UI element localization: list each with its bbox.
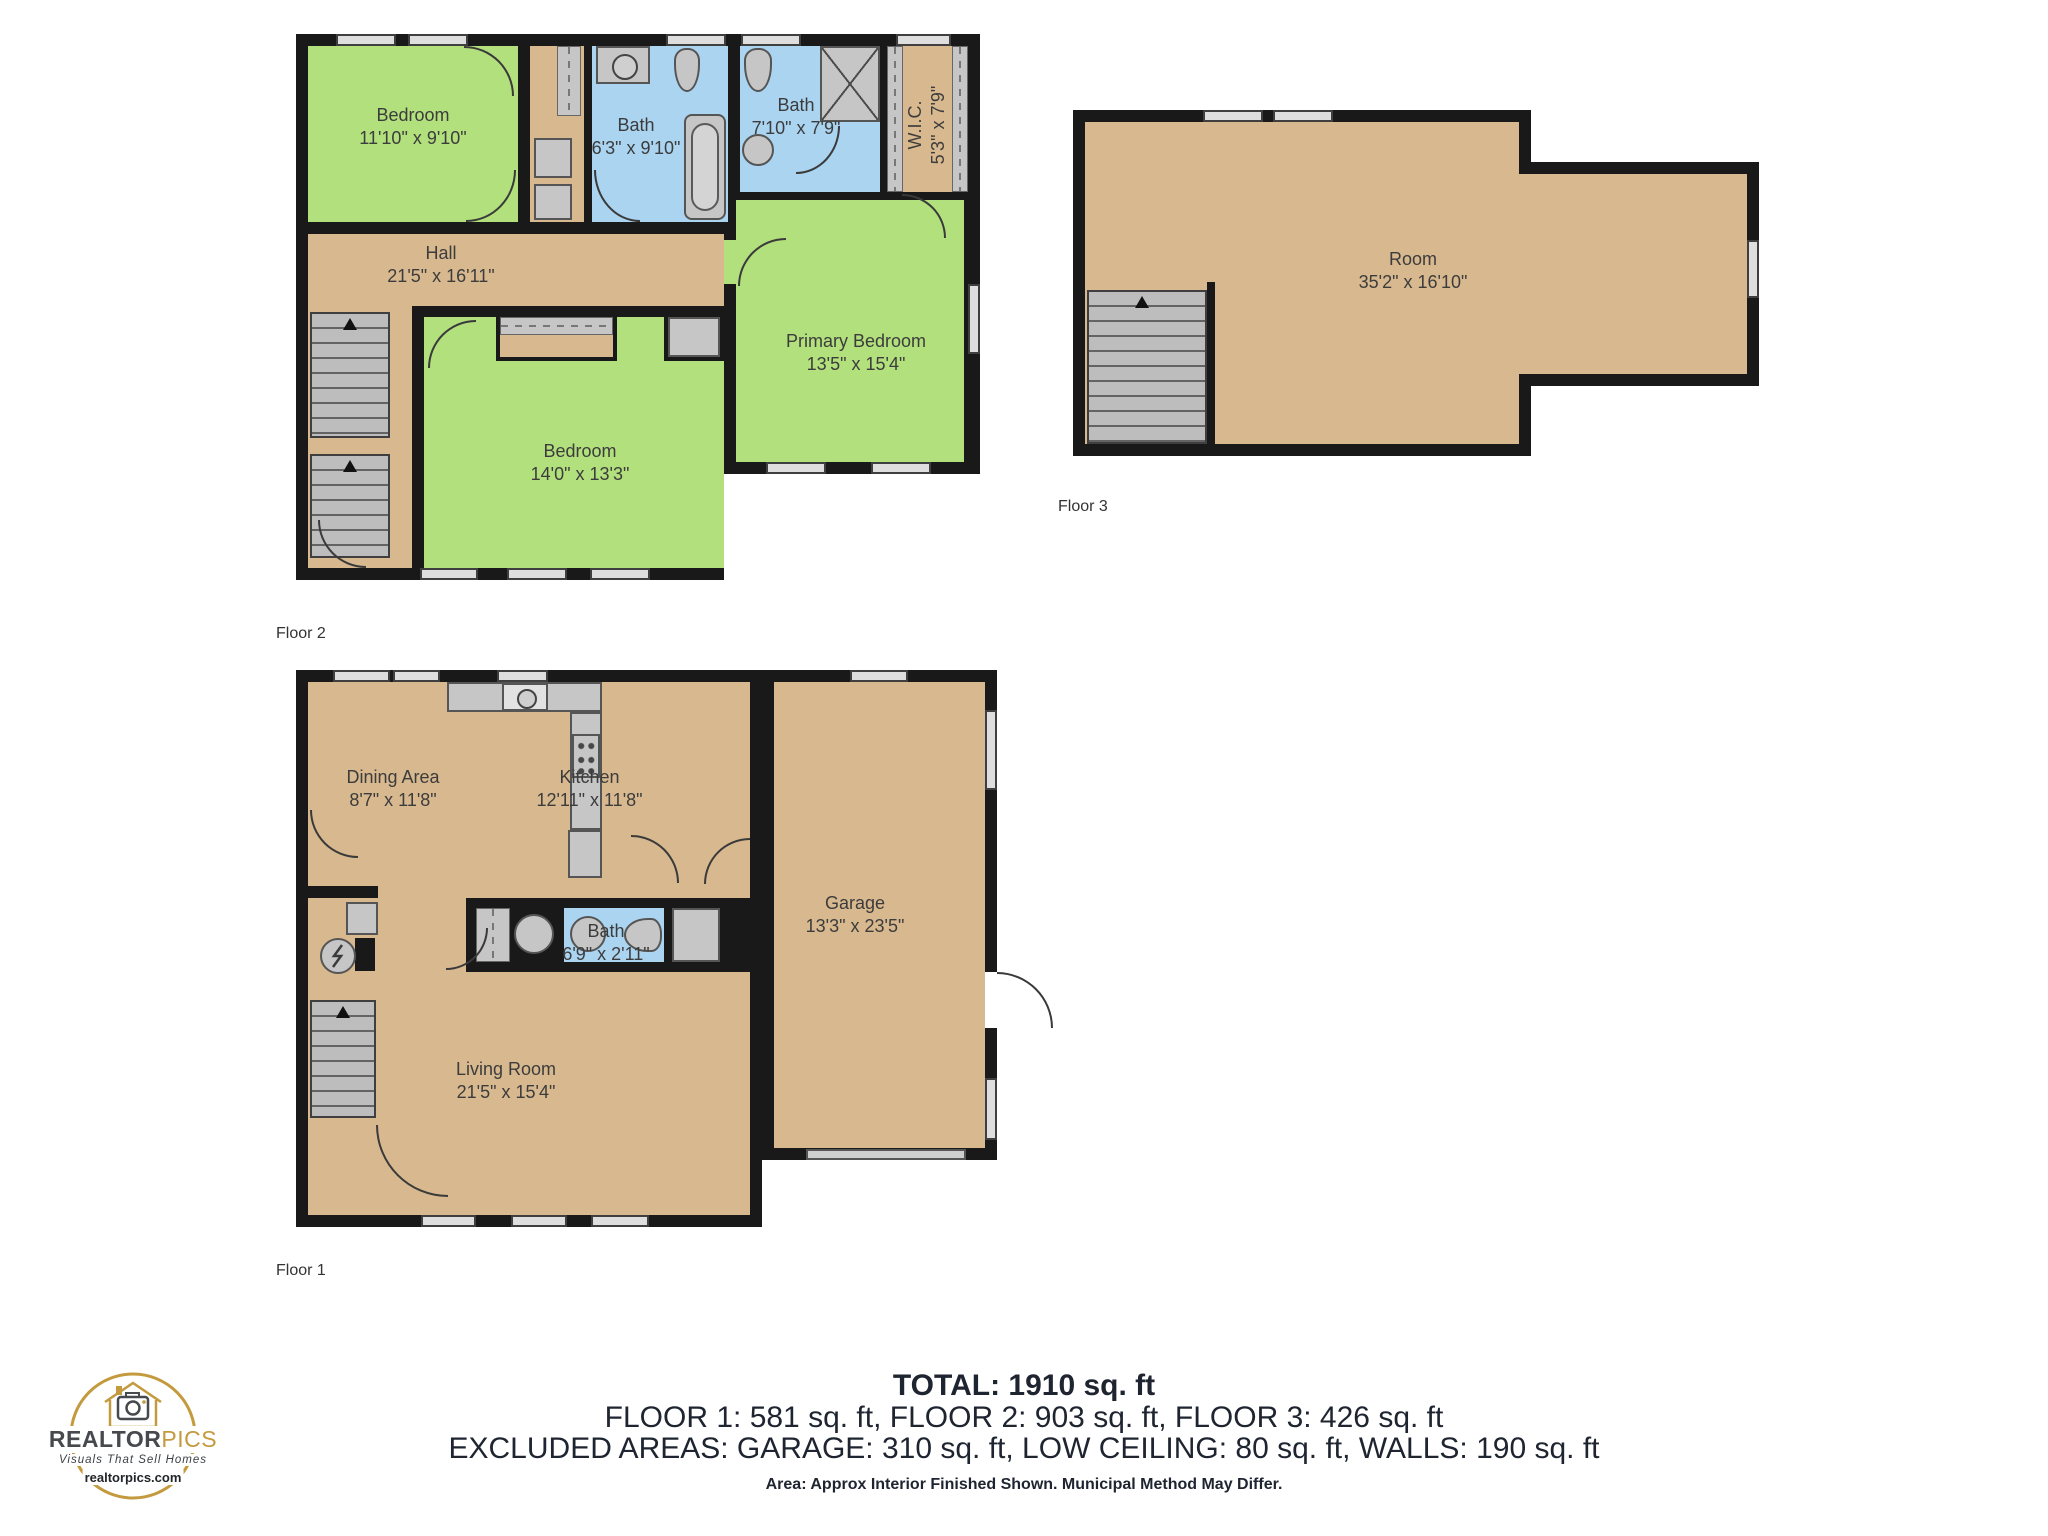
room-dims: 5'3" x 7'9" [927,55,950,195]
floor-areas: FLOOR 1: 581 sq. ft, FLOOR 2: 903 sq. ft… [0,1402,2048,1433]
logo-brand: REALTORPICS [46,1426,220,1453]
door-swing-icon [997,972,1053,1028]
logo-tagline: Visuals That Sell Homes [57,1454,209,1466]
window [850,670,908,682]
window [408,34,468,46]
room-dims: 21'5" x 15'4" [396,1081,616,1104]
window [336,34,396,46]
room-label: Bath 6'3" x 9'10" [576,114,696,160]
floor1-caption: Floor 1 [276,1262,326,1280]
sink-basin-icon [517,689,537,709]
window [511,1215,567,1227]
room-name: Bath [551,920,661,943]
wall [1207,282,1215,444]
window [985,1078,997,1140]
room-dims: 35'2" x 16'10" [1303,271,1523,294]
door-opening [985,972,997,1028]
room-name: Room [1303,248,1523,271]
window [666,34,726,46]
cabinet [534,184,572,220]
wall [308,886,378,898]
window [497,670,548,682]
room-name: Dining Area [333,766,453,789]
logo-brand-realtor: REALTOR [49,1426,162,1452]
window [896,34,951,46]
total-area: TOTAL: 1910 sq. ft [0,1370,2048,1402]
floorplan-page: Bedroom 11'10" x 9'10" Bath 6'3" x 9'10"… [0,0,2048,1536]
stairs-up-arrow-icon [1135,296,1149,308]
floor3-caption: Floor 3 [1058,498,1108,516]
electrical-panel-icon [320,938,356,974]
floor1-plan: Dining Area 8'7" x 11'8" Kitchen 12'11" … [296,670,997,1227]
window [1203,110,1263,122]
room-label: Dining Area 8'7" x 11'8" [333,766,453,812]
window [871,462,931,474]
window [591,1215,649,1227]
area-summary: TOTAL: 1910 sq. ft FLOOR 1: 581 sq. ft, … [0,1370,2048,1494]
refrigerator-icon [568,830,602,878]
room-name: Garage [745,892,965,915]
floor2-plan: Bedroom 11'10" x 9'10" Bath 6'3" x 9'10"… [296,34,980,580]
logo-url: realtorpics.com [83,1470,184,1485]
room-name: W.I.C. [904,55,927,195]
window [741,34,801,46]
window [1747,240,1759,298]
cabinet [672,908,720,962]
sink-basin-icon [612,54,638,80]
stairs [1087,290,1207,444]
room-bonus-extension [1507,174,1747,374]
room-label: Hall 21'5" x 16'11" [336,242,546,288]
room-name: Hall [336,242,546,265]
floor3-plan: Room 35'2" x 16'10" [1073,110,1759,456]
room-name: Bath [740,94,852,117]
room-name: Bedroom [470,440,690,463]
room-label: Primary Bedroom 13'5" x 15'4" [746,330,966,376]
room-name: Primary Bedroom [746,330,966,353]
room-name: Living Room [396,1058,616,1081]
room-label: Room 35'2" x 16'10" [1303,248,1523,294]
stairs [310,312,390,438]
room-dims: 14'0" x 13'3" [470,463,690,486]
lightning-icon [322,940,354,972]
room-label: Garage 13'3" x 23'5" [745,892,965,938]
closet-rod [952,46,968,192]
room-label: Bath 6'9" x 2'11" [551,920,661,966]
room-dims: 11'10" x 9'10" [308,127,518,150]
window [421,1215,476,1227]
room-name: Kitchen [527,766,652,789]
door-opening [724,240,736,284]
closet-rod [887,46,903,192]
window [590,568,650,580]
stairs-up-arrow-icon [343,318,357,330]
window [420,568,478,580]
washer-icon [514,914,554,954]
room-name: Bath [576,114,696,137]
cabinet [534,138,572,178]
room-dims: 6'9" x 2'11" [551,943,661,966]
room-dims: 12'11" x 11'8" [527,789,652,812]
wall [355,938,375,971]
window [766,462,826,474]
room-dims: 8'7" x 11'8" [333,789,453,812]
window [333,670,390,682]
logo-brand-pics: PICS [161,1426,217,1452]
room-dims: 13'5" x 15'4" [746,353,966,376]
sink-icon [596,46,650,84]
room-dims: 7'10" x 7'9" [740,117,852,140]
stairs-up-arrow-icon [336,1006,350,1018]
chimney [668,317,720,357]
window [393,670,440,682]
room-label: Kitchen 12'11" x 11'8" [527,766,652,812]
window [1273,110,1333,122]
stairs-up-arrow-icon [343,460,357,472]
window [968,284,980,354]
kitchen-sink-icon [502,683,548,711]
realtorpics-logo: REALTORPICS Visuals That Sell Homes real… [54,1370,212,1502]
room-label: W.I.C. 5'3" x 7'9" [904,55,950,195]
house-camera-icon [101,1378,165,1430]
garage-door [806,1149,966,1160]
closet-rod [500,317,613,335]
room-label: Bedroom 11'10" x 9'10" [308,104,518,150]
room-dims: 21'5" x 16'11" [336,265,546,288]
window [985,710,997,790]
disclaimer: Area: Approx Interior Finished Shown. Mu… [0,1476,2048,1494]
room-label: Living Room 21'5" x 15'4" [396,1058,616,1104]
window [507,568,567,580]
excluded-areas: EXCLUDED AREAS: GARAGE: 310 sq. ft, LOW … [0,1433,2048,1464]
floor2-caption: Floor 2 [276,625,326,643]
room-label: Bedroom 14'0" x 13'3" [470,440,690,486]
room-name: Bedroom [308,104,518,127]
room-dims: 6'3" x 9'10" [576,137,696,160]
room-label: Bath 7'10" x 7'9" [740,94,852,140]
closet [346,902,378,935]
cabinet [557,46,581,116]
room-dims: 13'3" x 23'5" [745,915,965,938]
